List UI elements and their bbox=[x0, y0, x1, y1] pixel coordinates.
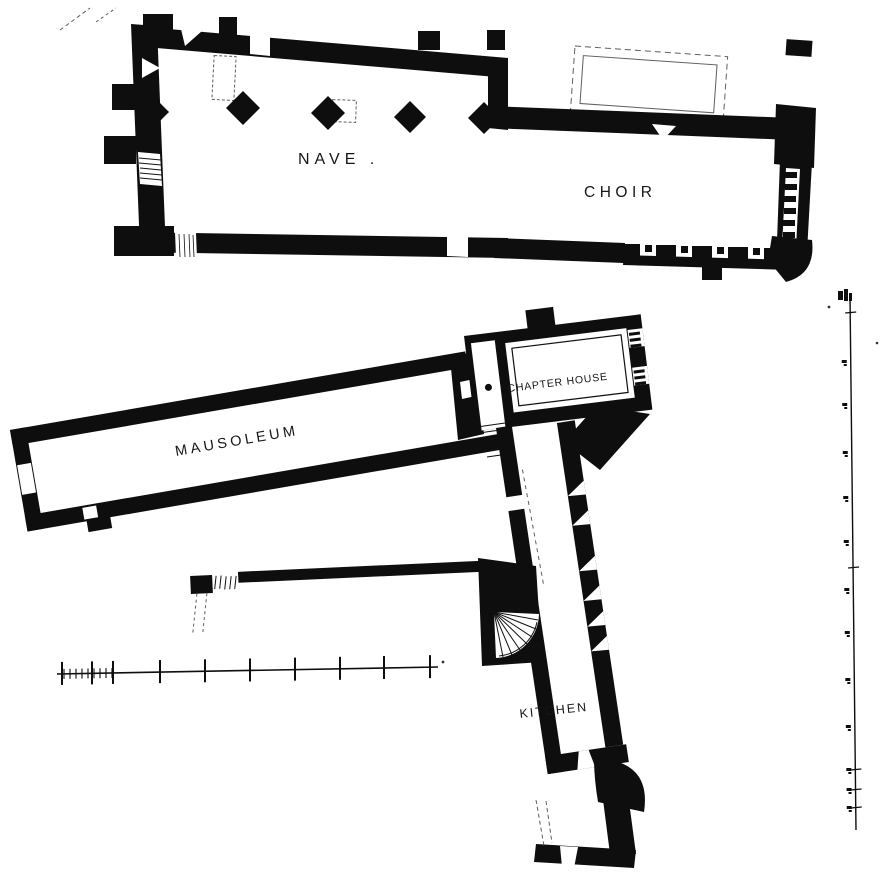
ruler-figure-mark bbox=[844, 540, 849, 543]
ruler-figure-mark bbox=[848, 772, 851, 774]
arcade-pillars bbox=[141, 91, 500, 134]
ruler-top-mark bbox=[838, 291, 843, 300]
ruler-figure-mark bbox=[844, 364, 847, 366]
nave-label: NAVE . bbox=[298, 151, 379, 168]
floor-plan-canvas: NAVE . CHOIR MAUSOLEUM CHAPTER HOUSE KIT… bbox=[0, 0, 892, 878]
ruler-top-mark bbox=[849, 293, 852, 301]
scale-bar bbox=[57, 655, 438, 685]
ruler-figure-mark bbox=[843, 451, 848, 454]
ruler-figure-mark bbox=[847, 682, 850, 684]
scale-bar-line bbox=[57, 667, 438, 674]
ruler-figure-mark bbox=[844, 588, 849, 591]
ruler-figure-mark bbox=[845, 455, 848, 457]
ruler-figure-mark bbox=[849, 792, 852, 794]
ruler-cross-tick bbox=[850, 769, 861, 770]
ruler-figure-mark bbox=[846, 592, 849, 594]
pillar-diamond bbox=[394, 101, 426, 133]
font-outline-dashed bbox=[212, 55, 236, 100]
nave-structure bbox=[104, 14, 508, 258]
pillar-diamond bbox=[311, 96, 345, 130]
ruler-figure-mark bbox=[849, 810, 852, 812]
bakehouse-extension bbox=[534, 792, 636, 868]
ruler-cross-tick bbox=[851, 789, 862, 790]
choir-label: CHOIR bbox=[584, 184, 656, 201]
ruler-line bbox=[850, 296, 856, 830]
south-buttress-stub bbox=[702, 264, 722, 280]
choir-structure bbox=[490, 39, 816, 282]
ruler-cross-tick bbox=[845, 312, 856, 313]
right-edge-ruler bbox=[838, 289, 862, 830]
pillar-diamond bbox=[226, 91, 260, 125]
ruler-figure-mark bbox=[845, 631, 850, 634]
cloister-wall bbox=[190, 561, 482, 634]
ruler-cross-tick bbox=[848, 567, 859, 568]
west-doorway bbox=[17, 463, 36, 495]
north-stub bbox=[525, 307, 555, 330]
south-doorway bbox=[82, 505, 98, 519]
door-splay bbox=[560, 846, 578, 868]
ruler-figure-mark bbox=[843, 496, 848, 499]
ruler-figure-mark bbox=[848, 729, 851, 731]
wall-hatch bbox=[214, 575, 237, 590]
ruler-figure-mark bbox=[845, 678, 850, 681]
ruler-cross-tick bbox=[851, 807, 862, 808]
ruler-top-mark bbox=[844, 289, 848, 301]
scanned-plan-page: NAVE . CHOIR MAUSOLEUM CHAPTER HOUSE KIT… bbox=[0, 0, 892, 878]
ruler-figure-mark bbox=[844, 407, 847, 409]
ruler-figure-mark bbox=[847, 635, 850, 637]
ruler-figure-mark bbox=[846, 725, 851, 728]
ruler-figure-mark bbox=[842, 403, 847, 406]
ruler-figure-mark bbox=[842, 360, 847, 363]
mausoleum-label: MAUSOLEUM bbox=[174, 423, 300, 460]
paper-marks bbox=[60, 8, 116, 30]
ruler-figure-mark bbox=[846, 544, 849, 546]
ruler-figure-mark bbox=[845, 500, 848, 502]
